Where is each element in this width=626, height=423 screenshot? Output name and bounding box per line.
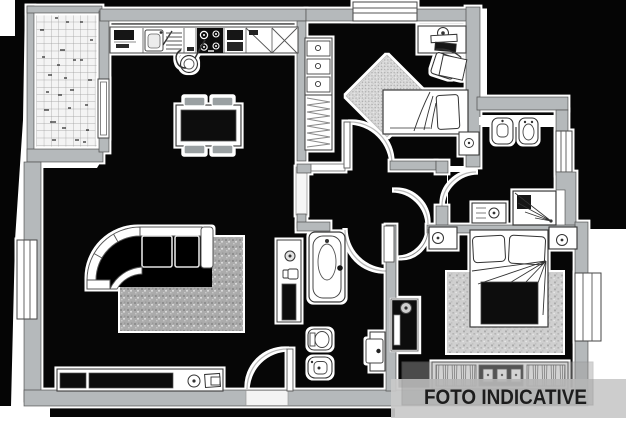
svg-text:FOTO INDICATIVE: FOTO INDICATIVE — [424, 386, 587, 409]
